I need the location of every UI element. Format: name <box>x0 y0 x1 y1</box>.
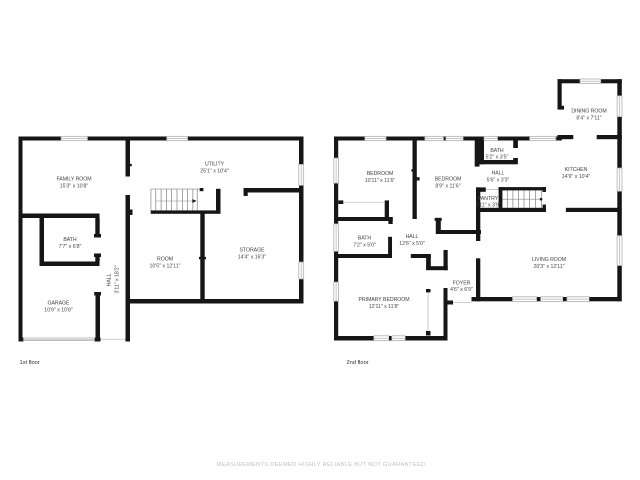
svg-text:ROOM: ROOM <box>157 257 173 263</box>
svg-text:STORAGE: STORAGE <box>240 248 266 254</box>
svg-text:7'2" x 5'0": 7'2" x 5'0" <box>353 242 376 248</box>
svg-text:4'6" x 6'9": 4'6" x 6'9" <box>450 287 473 293</box>
svg-text:1'11" x 3'9": 1'11" x 3'9" <box>475 202 500 208</box>
svg-text:12'11" x 11'8": 12'11" x 11'8" <box>369 304 400 310</box>
svg-text:FOYER: FOYER <box>453 280 471 286</box>
svg-text:BEDROOM: BEDROOM <box>367 171 394 177</box>
svg-text:10'11" x 11'6": 10'11" x 11'6" <box>365 178 396 184</box>
svg-text:HALL: HALL <box>107 273 113 286</box>
svg-text:PANTRY: PANTRY <box>478 196 499 202</box>
svg-text:KITCHEN: KITCHEN <box>565 167 588 173</box>
svg-text:2nd floor: 2nd floor <box>347 360 369 366</box>
svg-text:14'4" x 16'3": 14'4" x 16'3" <box>238 254 267 260</box>
svg-text:PRIMARY BEDROOM: PRIMARY BEDROOM <box>358 297 409 303</box>
svg-text:GARAGE: GARAGE <box>48 301 71 307</box>
svg-text:BATH: BATH <box>490 148 504 154</box>
svg-text:HALL: HALL <box>492 171 505 177</box>
svg-text:MEASUREMENTS DEEMED HIGHLY REL: MEASUREMENTS DEEMED HIGHLY RELIABLE BUT … <box>217 462 428 468</box>
svg-text:25'1" x 10'4": 25'1" x 10'4" <box>200 168 229 174</box>
svg-text:8'9" x 11'6": 8'9" x 11'6" <box>435 183 460 189</box>
svg-text:FAMILY ROOM: FAMILY ROOM <box>56 177 91 183</box>
svg-text:DINING ROOM: DINING ROOM <box>571 109 606 115</box>
svg-text:BEDROOM: BEDROOM <box>435 176 462 182</box>
svg-text:3'11" x 18'2": 3'11" x 18'2" <box>114 265 120 293</box>
svg-text:LIVING ROOM: LIVING ROOM <box>532 257 566 263</box>
svg-text:UTILITY: UTILITY <box>205 161 225 167</box>
svg-text:1st floor: 1st floor <box>20 360 40 366</box>
svg-text:5'6" x 3'3": 5'6" x 3'3" <box>487 178 510 184</box>
svg-text:15'3" x 10'8": 15'3" x 10'8" <box>60 183 89 189</box>
svg-text:12'6" x 5'0": 12'6" x 5'0" <box>399 241 425 247</box>
svg-text:8'4" x 7'11": 8'4" x 7'11" <box>576 115 601 121</box>
svg-text:HALL: HALL <box>406 234 419 240</box>
svg-text:10'9" x 10'8": 10'9" x 10'8" <box>44 308 73 314</box>
svg-text:5'2" x 3'5": 5'2" x 3'5" <box>486 154 509 160</box>
svg-text:14'9" x 10'4": 14'9" x 10'4" <box>562 174 591 180</box>
svg-text:BATH: BATH <box>358 236 372 242</box>
svg-text:7'7" x 6'8": 7'7" x 6'8" <box>59 244 82 250</box>
svg-text:BATH: BATH <box>63 237 77 243</box>
svg-text:10'5" x 12'11": 10'5" x 12'11" <box>150 263 181 269</box>
svg-text:20'3" x 12'11": 20'3" x 12'11" <box>534 264 565 270</box>
